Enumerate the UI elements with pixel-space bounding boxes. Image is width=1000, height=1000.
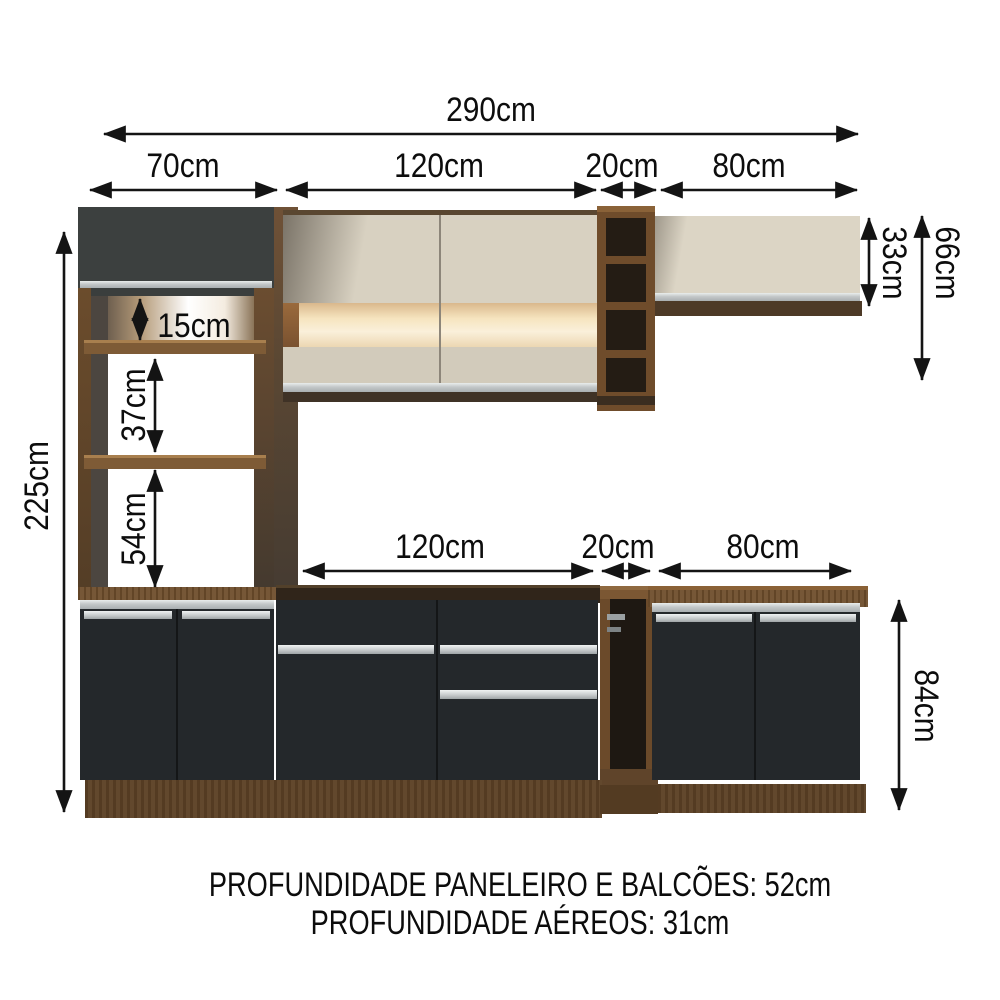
label-niche-15: 15cm (157, 309, 230, 343)
upper-tower-niche-4 (606, 358, 646, 392)
lower-tower-hinge-2 (607, 627, 621, 632)
label-top-segment-20: 20cm (585, 149, 658, 183)
label-total-width: 290cm (446, 93, 536, 127)
label-total-height: 225cm (20, 441, 54, 531)
lower-tower-left-frame (600, 599, 610, 769)
label-top-segment-70: 70cm (146, 149, 219, 183)
pantry-top-door-handle (80, 281, 272, 288)
counter-drawer-handle-right-1 (440, 645, 597, 654)
upper-cabinet-lighted-niche (299, 303, 597, 347)
label-aereo-33: 33cm (877, 226, 911, 299)
lower-tower-hinge-1 (607, 614, 625, 620)
label-counter-segment-20: 20cm (581, 530, 654, 564)
right-upper-handle-strip (655, 293, 860, 301)
lower-tower-interior (610, 599, 646, 769)
pantry-left-rail (78, 288, 91, 600)
upper-cabinet-door-seam (439, 215, 441, 383)
label-top-segment-80: 80cm (712, 149, 785, 183)
right-balcao-handle-right (760, 614, 856, 622)
counter-drawer-handle-left (278, 645, 434, 654)
footer-depth-paneleiro-balcoes: PROFUNDIDADE PANELEIRO E BALCÕES: 52cm (209, 868, 831, 902)
pantry-shelf-2 (84, 455, 266, 469)
pantry-base-door-seam (176, 609, 178, 780)
counter-drawer-handle-right-2 (440, 690, 597, 699)
kitchen-dimension-diagram: 290cm 70cm 120cm 20cm 80cm 225cm 15cm 37… (0, 0, 1000, 1000)
footer-depth-aereos: PROFUNDIDADE AÉREOS: 31cm (311, 906, 730, 940)
pantry-right-rail (254, 288, 274, 600)
upper-tower-niche-3 (606, 310, 646, 350)
upper-tower-niche-1 (606, 218, 646, 256)
right-upper-door (655, 216, 860, 293)
lower-tower-bottom-wood (600, 769, 658, 785)
upper-tower-bottom-band (597, 396, 655, 405)
pantry-base-top-band (80, 600, 274, 609)
label-niche-37: 37cm (117, 368, 151, 441)
right-balcao-handle-left (656, 614, 752, 622)
counter-seam (436, 600, 438, 780)
label-balcao-height: 84cm (909, 669, 943, 742)
label-counter-segment-80: 80cm (726, 530, 799, 564)
label-niche-54: 54cm (117, 492, 151, 565)
pantry-top-door (78, 207, 274, 288)
right-upper-bottom-band (655, 301, 862, 316)
upper-cabinet-bottom-band (283, 392, 597, 402)
upper-cabinet-handle-strip (283, 383, 597, 392)
pantry-base-handle-left (84, 611, 172, 619)
pantry-counter-strip (78, 587, 276, 600)
upper-cabinet-niche-wood-edge (283, 303, 299, 347)
plinth-left (85, 780, 602, 818)
label-counter-segment-120: 120cm (395, 530, 485, 564)
right-balcao-top-band (652, 603, 860, 612)
label-aereo-66: 66cm (930, 226, 964, 299)
upper-tower-niche-2 (606, 264, 646, 302)
pantry-base-handle-right (182, 611, 270, 619)
plinth-tower (600, 785, 658, 814)
plinth-right (658, 784, 866, 813)
right-balcao-door-seam (754, 612, 756, 780)
right-balcao-doors (652, 612, 860, 780)
label-top-segment-120: 120cm (394, 149, 484, 183)
